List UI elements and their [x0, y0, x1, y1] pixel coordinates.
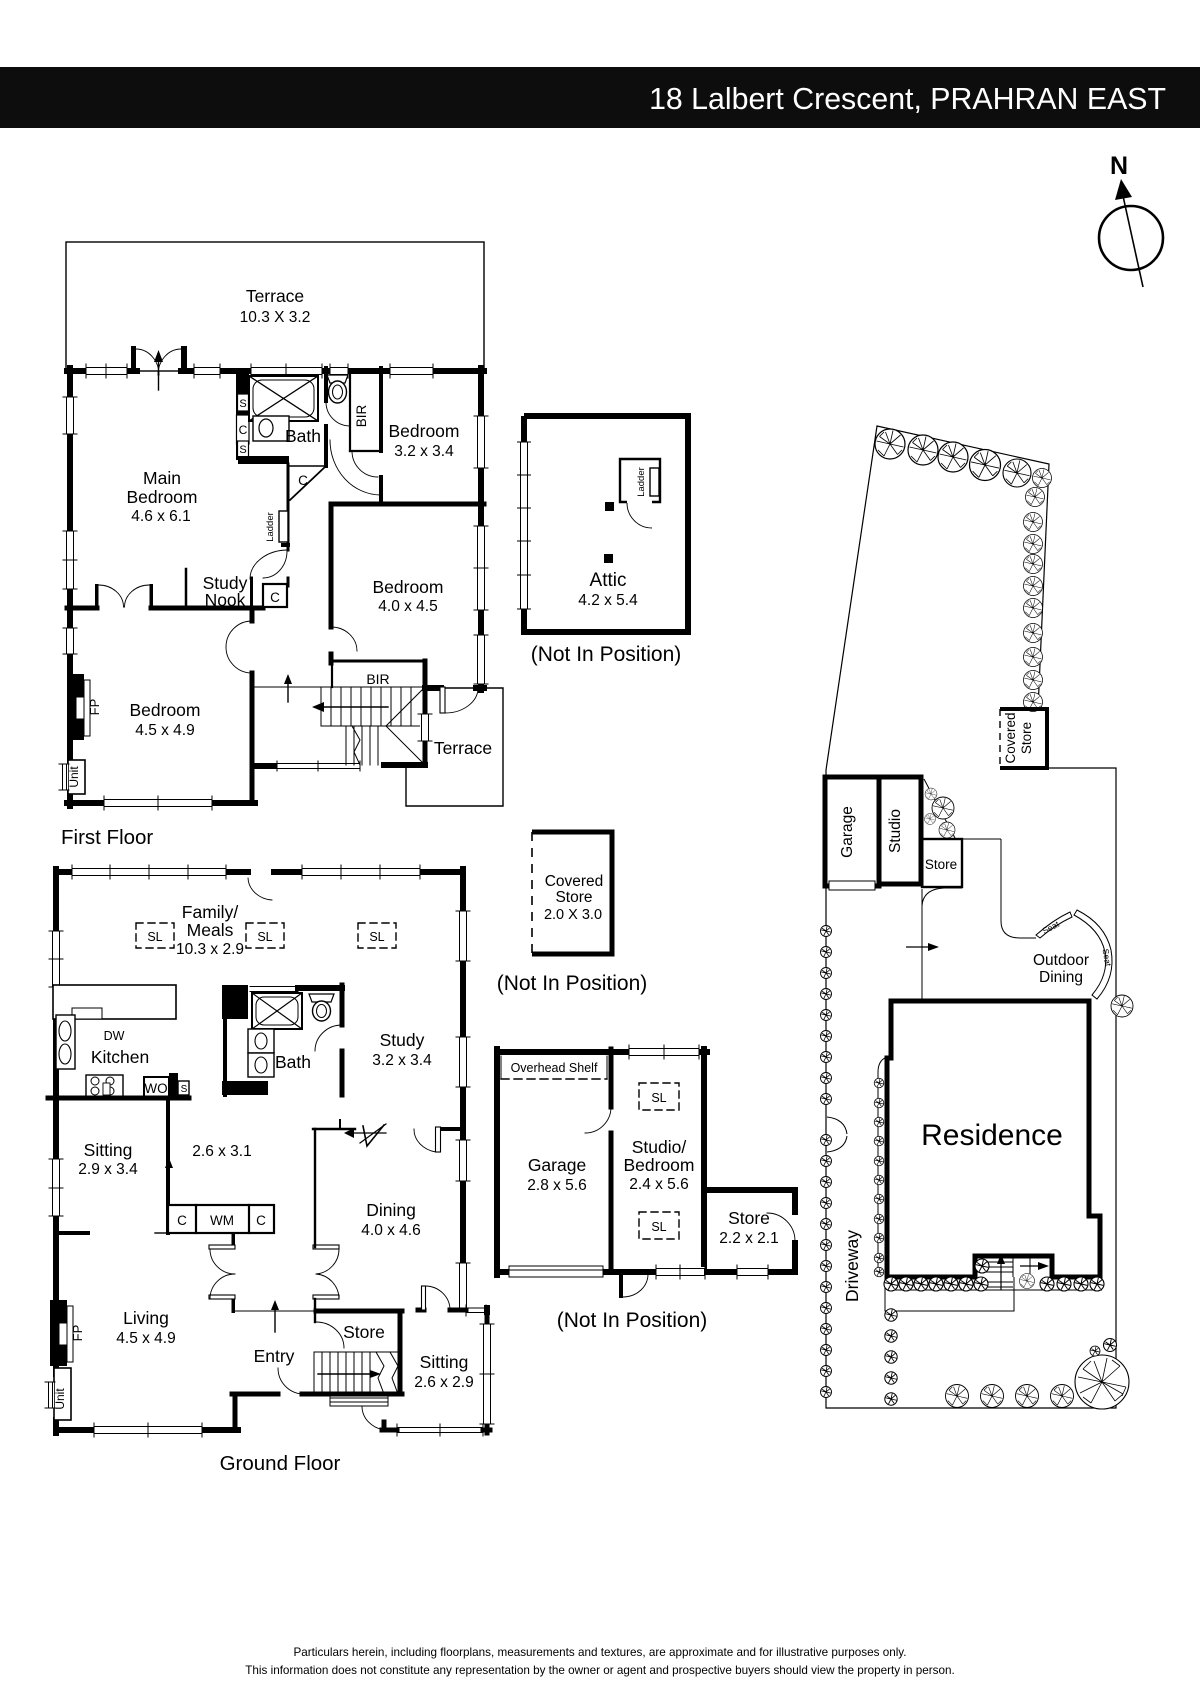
- svg-text:C: C: [239, 423, 248, 437]
- svg-text:BIR: BIR: [366, 671, 389, 687]
- svg-text:Living: Living: [123, 1308, 169, 1328]
- svg-text:4.0 x 4.6: 4.0 x 4.6: [361, 1222, 420, 1239]
- svg-text:Bedroom: Bedroom: [623, 1155, 694, 1175]
- svg-text:N: N: [1110, 152, 1128, 180]
- svg-text:Ladder: Ladder: [265, 512, 276, 542]
- svg-text:(Not In Position): (Not In Position): [557, 1309, 708, 1332]
- svg-text:Studio/: Studio/: [632, 1137, 687, 1157]
- svg-text:Dining: Dining: [366, 1200, 416, 1220]
- svg-text:Terrace: Terrace: [434, 738, 492, 758]
- svg-text:This information does not cons: This information does not constitute any…: [245, 1664, 954, 1677]
- svg-text:Meals: Meals: [187, 920, 234, 940]
- svg-text:First Floor: First Floor: [61, 826, 153, 849]
- svg-text:Sitting: Sitting: [420, 1352, 469, 1372]
- svg-text:Covered: Covered: [545, 873, 604, 890]
- svg-text:Ground Floor: Ground Floor: [220, 1452, 341, 1475]
- svg-text:SL: SL: [147, 930, 162, 944]
- svg-text:Unit: Unit: [53, 1388, 67, 1410]
- svg-text:BIR: BIR: [354, 405, 369, 428]
- svg-text:4.5 x 4.9: 4.5 x 4.9: [135, 722, 194, 739]
- svg-text:Sitting: Sitting: [84, 1140, 133, 1160]
- svg-text:Nook: Nook: [205, 590, 246, 610]
- svg-text:S: S: [239, 444, 246, 456]
- svg-text:Outdoor: Outdoor: [1033, 952, 1089, 969]
- svg-text:FP: FP: [70, 1325, 85, 1342]
- svg-text:WM: WM: [210, 1213, 234, 1228]
- svg-text:FP: FP: [87, 699, 102, 716]
- svg-text:2.0 X 3.0: 2.0 X 3.0: [544, 907, 602, 923]
- svg-text:Bedroom: Bedroom: [129, 700, 200, 720]
- svg-text:Main: Main: [143, 468, 181, 488]
- svg-text:Family/: Family/: [182, 902, 239, 922]
- svg-text:2.6 x 2.9: 2.6 x 2.9: [414, 1374, 473, 1391]
- svg-text:Store: Store: [1019, 722, 1034, 754]
- svg-text:Driveway: Driveway: [842, 1230, 862, 1302]
- svg-text:2.9 x 3.4: 2.9 x 3.4: [78, 1161, 138, 1178]
- svg-text:Ladder: Ladder: [636, 467, 647, 497]
- svg-text:C: C: [298, 473, 308, 488]
- svg-text:Garage: Garage: [528, 1155, 586, 1175]
- svg-text:4.0 x 4.5: 4.0 x 4.5: [378, 598, 437, 615]
- svg-text:3.2 x 3.4: 3.2 x 3.4: [394, 443, 454, 460]
- svg-text:Unit: Unit: [67, 766, 81, 788]
- svg-text:(Not In Position): (Not In Position): [531, 643, 682, 666]
- svg-text:Store: Store: [343, 1322, 385, 1342]
- svg-text:C: C: [270, 590, 280, 605]
- svg-text:Entry: Entry: [254, 1346, 295, 1366]
- svg-text:S: S: [181, 1084, 188, 1095]
- svg-text:2.6 x 3.1: 2.6 x 3.1: [192, 1143, 251, 1160]
- svg-text:4.5 x 4.9: 4.5 x 4.9: [116, 1330, 175, 1347]
- svg-text:C: C: [177, 1213, 187, 1228]
- svg-text:Store: Store: [925, 857, 957, 872]
- svg-text:Bedroom: Bedroom: [388, 421, 459, 441]
- svg-text:2.8 x 5.6: 2.8 x 5.6: [527, 1177, 586, 1194]
- svg-text:Residence: Residence: [921, 1119, 1063, 1152]
- svg-text:Studio: Studio: [887, 809, 904, 853]
- svg-text:2.2 x 2.1: 2.2 x 2.1: [719, 1230, 778, 1247]
- svg-text:(Not In Position): (Not In Position): [497, 972, 648, 995]
- svg-text:Bath: Bath: [285, 426, 321, 446]
- svg-text:Bedroom: Bedroom: [372, 577, 443, 597]
- svg-text:18 Lalbert Crescent, PRAHRAN E: 18 Lalbert Crescent, PRAHRAN EAST: [649, 83, 1166, 116]
- svg-text:Study: Study: [380, 1030, 425, 1050]
- svg-text:DW: DW: [104, 1029, 125, 1043]
- svg-text:Terrace: Terrace: [246, 286, 304, 306]
- svg-text:Bath: Bath: [275, 1052, 311, 1072]
- svg-text:4.6 x 6.1: 4.6 x 6.1: [131, 508, 190, 525]
- svg-text:Kitchen: Kitchen: [91, 1047, 149, 1067]
- svg-text:Garage: Garage: [839, 806, 856, 858]
- svg-text:Store: Store: [728, 1208, 770, 1228]
- svg-text:Store: Store: [555, 889, 592, 906]
- svg-text:Dining: Dining: [1039, 969, 1083, 986]
- svg-text:SL: SL: [651, 1220, 666, 1234]
- svg-text:C: C: [256, 1213, 266, 1228]
- svg-text:S: S: [239, 398, 246, 410]
- svg-text:4.2 x 5.4: 4.2 x 5.4: [578, 592, 638, 609]
- svg-text:SL: SL: [651, 1091, 666, 1105]
- svg-text:Bedroom: Bedroom: [126, 487, 197, 507]
- svg-text:10.3 x 2.9: 10.3 x 2.9: [176, 941, 244, 958]
- svg-text:Covered: Covered: [1003, 712, 1018, 763]
- svg-text:Overhead Shelf: Overhead Shelf: [511, 1061, 598, 1075]
- svg-text:3.2 x 3.4: 3.2 x 3.4: [372, 1052, 432, 1069]
- svg-text:Attic: Attic: [590, 570, 627, 591]
- svg-text:2.4 x 5.6: 2.4 x 5.6: [629, 1176, 688, 1193]
- svg-text:Seat: Seat: [1101, 948, 1114, 968]
- svg-text:Particulars herein, including: Particulars herein, including floorplans…: [293, 1646, 906, 1659]
- svg-text:SL: SL: [257, 930, 272, 944]
- svg-text:SL: SL: [369, 930, 384, 944]
- svg-text:WO: WO: [144, 1081, 167, 1096]
- svg-text:10.3 X 3.2: 10.3 X 3.2: [240, 309, 311, 326]
